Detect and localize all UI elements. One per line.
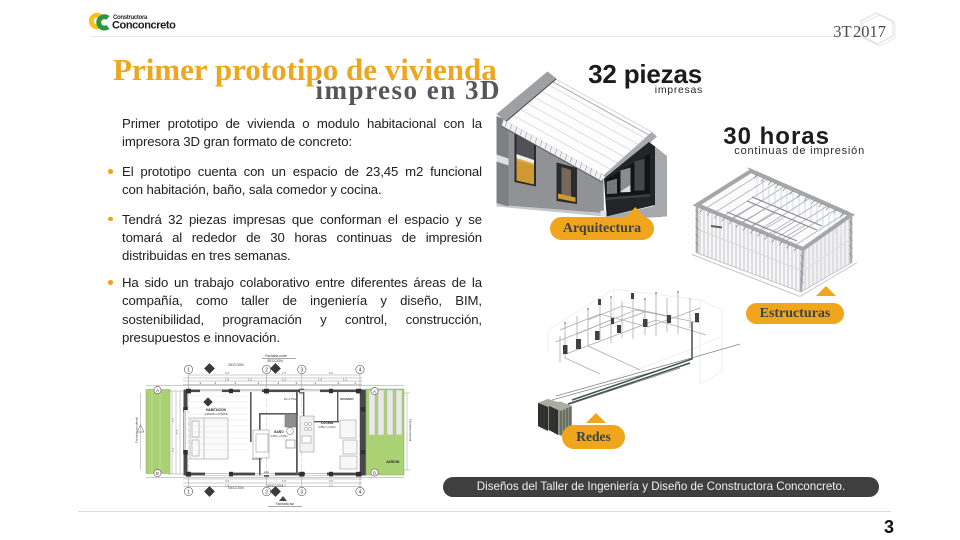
svg-text:1.5: 1.5 [282,377,286,381]
svg-text:A: A [156,388,159,393]
svg-text:2.05m x 2.05m: 2.05m x 2.05m [270,434,287,438]
svg-text:2: 2 [265,368,268,374]
svg-text:1.8: 1.8 [225,377,229,381]
svg-text:JARDIN: JARDIN [386,460,400,464]
svg-text:CLOSET: CLOSET [252,457,263,461]
svg-text:SECCION: SECCION [228,486,244,490]
svg-text:3: 3 [300,490,303,496]
svg-text:1: 1 [187,490,190,496]
svg-text:1.5: 1.5 [282,371,286,375]
svg-text:3.1: 3.1 [171,448,175,452]
svg-text:BAÑO: BAÑO [274,429,284,434]
svg-text:3.4: 3.4 [225,371,229,375]
svg-text:SC 2.75m: SC 2.75m [284,397,297,401]
svg-text:Fachada sur: Fachada sur [276,502,296,506]
svg-text:SECCION: SECCION [267,484,283,488]
svg-text:SECCION: SECCION [267,359,283,363]
svg-text:4: 4 [359,490,362,496]
svg-text:1.2: 1.2 [343,377,347,381]
svg-text:Conconcreto: Conconcreto [112,20,176,32]
svg-text:2.6: 2.6 [329,371,333,375]
svg-text:2 85m x 3.00m: 2 85m x 3.00m [318,425,335,429]
svg-text:1.6: 1.6 [248,377,252,381]
svg-text:6.1: 6.1 [175,430,179,434]
svg-text:1: 1 [187,368,190,374]
svg-text:2.7: 2.7 [171,418,175,422]
svg-text:2: 2 [265,490,268,496]
svg-text:COCINA: COCINA [321,421,334,425]
svg-text:4: 4 [359,368,362,374]
svg-text:1.4: 1.4 [318,377,322,381]
svg-text:ROCIADO: ROCIADO [340,397,354,401]
svg-text:A: A [373,389,376,394]
svg-text:2.2: 2.2 [329,483,333,487]
svg-text:2 PISOS x 2 PISOS: 2 PISOS x 2 PISOS [205,412,228,416]
svg-text:Fachada norte: Fachada norte [265,354,287,358]
svg-text:HABITACIÓN: HABITACIÓN [206,407,226,412]
svg-text:3: 3 [300,368,303,374]
svg-text:B: B [373,470,376,475]
svg-text:SECCION: SECCION [228,363,244,367]
svg-text:Fachada oriental: Fachada oriental [409,419,413,442]
svg-text:B: B [156,471,159,476]
